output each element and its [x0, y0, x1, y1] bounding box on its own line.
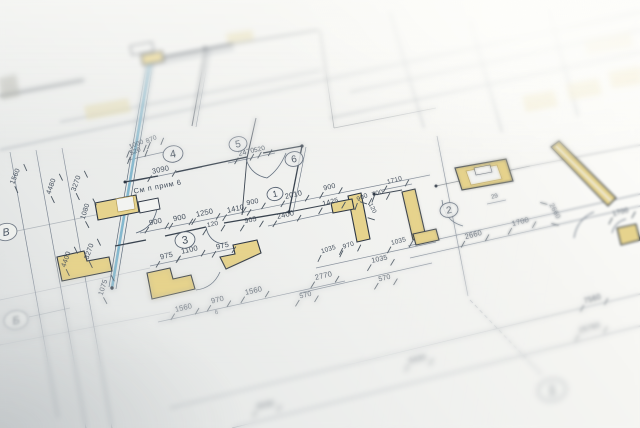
dimension-tick	[239, 225, 245, 231]
dimension-tick	[159, 138, 166, 145]
dimension-group: 4480	[43, 172, 64, 203]
dimension-label: 900	[172, 212, 187, 224]
dimension-label: 1250	[195, 206, 214, 218]
dimension-group: 570	[372, 272, 399, 289]
dimension-group: 1035	[314, 242, 344, 262]
dimension-group: 1560	[7, 162, 29, 193]
dimension-label: 570	[299, 291, 313, 301]
dimension-tick	[22, 164, 29, 171]
dimension-tick	[385, 193, 391, 200]
dimension-group: 2010	[278, 187, 311, 207]
dimension-label: 970	[342, 240, 355, 250]
dimension-tick	[318, 192, 324, 198]
dimension-label: 120	[367, 202, 377, 215]
dimension-label: 1710	[386, 175, 403, 186]
dimension-tick	[304, 195, 310, 201]
dimension-tick	[392, 279, 398, 285]
dimension-tick	[276, 405, 282, 411]
dimension-tick	[264, 291, 270, 297]
dimension-group: 900	[142, 214, 170, 233]
dimension-tick	[296, 215, 302, 221]
dimension-tick	[125, 157, 132, 164]
dimension-label: 2010	[284, 188, 303, 201]
dimension-tick	[215, 213, 221, 219]
dimension-tick	[630, 212, 636, 219]
dimension-group: 29	[491, 193, 500, 201]
room-number-circle: 4	[162, 144, 185, 164]
dimension-tick	[389, 259, 395, 265]
dimension-label: 2660	[464, 228, 483, 241]
dimension-tick	[49, 196, 56, 203]
dimension-label: 1035	[390, 236, 407, 247]
dimension-tick	[356, 245, 363, 252]
dimension-tick	[366, 264, 372, 270]
dimension-tick	[428, 359, 434, 365]
dimension-tick	[74, 193, 81, 200]
dimension-group: 1560	[168, 300, 201, 320]
dimension-tick	[294, 300, 300, 306]
dimension-tick	[240, 297, 246, 303]
dimension-label: 2400	[276, 208, 295, 221]
dimension-label: 975	[159, 250, 174, 262]
dimension-label: 1560	[9, 168, 22, 186]
dimension-label: 900	[323, 183, 337, 193]
dimension-group: 1700	[505, 213, 538, 234]
dimension-tick	[310, 282, 316, 288]
dimension-label: 3270	[84, 243, 96, 261]
dimension-label: 1700	[612, 207, 630, 218]
dimension-group: 1035	[365, 253, 396, 271]
grid-axis-bubble: В	[0, 221, 18, 242]
dimension-tick	[258, 221, 264, 227]
dimension-tick	[368, 215, 375, 222]
dimension-group: 2400	[270, 207, 303, 227]
dimension-tick	[607, 218, 613, 225]
dimension-label: 900	[148, 216, 163, 228]
dimension-tick	[334, 276, 340, 282]
dimension-group: 6430	[402, 351, 435, 372]
dimension-group: 3270	[68, 169, 89, 200]
dimension-label: 6	[214, 310, 219, 317]
dimension-labels: 1000520870309024705209009001250120141090…	[7, 132, 637, 417]
dimension-label: 1080	[80, 203, 92, 221]
dimension-label: 570	[378, 274, 392, 284]
dimension-label: 120	[206, 220, 219, 229]
dimension-group: 6030	[250, 397, 283, 417]
room-number-circle: 2	[439, 201, 459, 219]
dimension-group: 900	[317, 181, 344, 198]
dimension-tick	[82, 171, 89, 178]
dimension-group: 700	[365, 187, 391, 205]
dimension-tick	[316, 255, 323, 262]
dimension-tick	[252, 411, 258, 417]
masonry-piers	[57, 42, 640, 299]
dimension-label: 870	[145, 134, 158, 145]
floorplan-drawing: 1000520870309024705209009001250120141090…	[0, 0, 640, 428]
dimension-label: 905	[244, 216, 257, 225]
grid-axis-bubble: Б	[2, 309, 29, 332]
dimension-tick	[155, 261, 161, 267]
dimension-tick	[602, 327, 608, 334]
dimension-group: 1080	[78, 197, 98, 228]
dimension-tick	[507, 228, 513, 235]
dimension-label: 900	[246, 198, 259, 207]
dimension-tick	[408, 241, 414, 248]
out-of-focus-linework-top	[0, 8, 640, 150]
dimension-group: 1700	[606, 205, 637, 224]
dimension-label: 2660	[547, 202, 561, 220]
dimension-label: 6430	[408, 352, 427, 365]
dimension-group: 2660	[540, 197, 564, 228]
grid-axis-bubbles: ВБ1	[0, 221, 568, 403]
dimension-group: 1035	[384, 235, 414, 254]
dimension-group: 6	[214, 310, 219, 317]
dimension-tick	[95, 239, 102, 246]
dimension-label: 6030	[256, 398, 275, 411]
dimension-group: 900	[166, 210, 194, 229]
dimension-label: 970	[210, 294, 225, 306]
dimension-tick	[84, 221, 91, 228]
dimension-tick	[404, 365, 410, 371]
dimension-label: 29	[491, 193, 500, 201]
dimension-label: 1035	[320, 244, 337, 255]
grid-axis-bubble: 1	[536, 377, 568, 404]
dimension-label: 2770	[314, 269, 333, 282]
room-number-circle: 1	[266, 186, 284, 202]
dimension-tick	[540, 200, 547, 207]
dimension-tick	[176, 256, 182, 262]
dimension-group: 1710	[380, 174, 410, 193]
dimension-tick	[317, 208, 323, 214]
dimension-group: 1560	[238, 283, 271, 303]
dimension-tick	[574, 335, 580, 342]
dimension-label: 1560	[244, 284, 263, 297]
dimension-group: 25760	[571, 318, 608, 341]
dimension-tick	[220, 225, 226, 231]
dimension-label: 700	[371, 189, 384, 199]
dimension-label: 1075	[98, 279, 110, 297]
photo-of-architectural-floorplan: 1000520870309024705209009001250120141090…	[0, 0, 640, 428]
dimension-group: 2660	[458, 226, 491, 247]
dimension-label: 7560	[583, 292, 602, 305]
dimension-label: 25760	[578, 320, 601, 335]
dimension-tick	[57, 174, 64, 181]
dimension-tick	[102, 297, 109, 304]
dimension-tick	[531, 221, 537, 228]
dimension-label: 3270	[71, 175, 83, 193]
dimension-tick	[246, 209, 252, 215]
dimension-label: 4480	[46, 178, 58, 196]
dimension-tick	[313, 296, 319, 302]
dimension-label: 1560	[174, 301, 193, 314]
dimension-tick	[373, 283, 379, 289]
dimension-label: 1700	[511, 215, 530, 228]
